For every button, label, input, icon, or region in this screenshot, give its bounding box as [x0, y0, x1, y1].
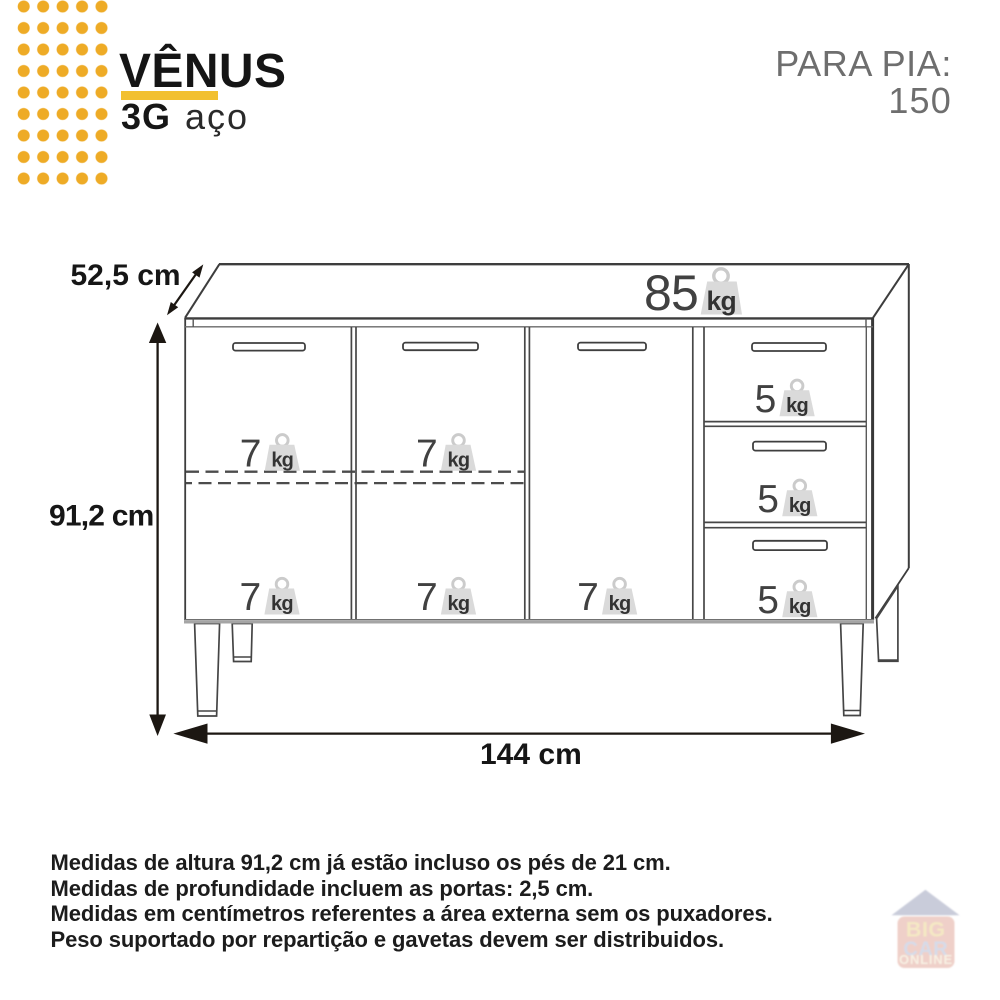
svg-text:91,2 cm: 91,2 cm: [49, 500, 153, 533]
svg-text:7: 7: [577, 576, 599, 619]
svg-text:52,5 cm: 52,5 cm: [71, 259, 181, 292]
svg-text:7: 7: [416, 576, 438, 619]
svg-text:7: 7: [239, 576, 261, 619]
svg-text:5: 5: [757, 478, 779, 521]
svg-text:7: 7: [240, 433, 262, 476]
svg-text:ONLINE: ONLINE: [899, 952, 953, 967]
svg-text:7: 7: [416, 433, 438, 476]
svg-text:5: 5: [755, 378, 777, 421]
svg-text:5: 5: [757, 579, 779, 622]
svg-text:144 cm: 144 cm: [480, 738, 582, 771]
svg-text:85: 85: [644, 265, 698, 321]
